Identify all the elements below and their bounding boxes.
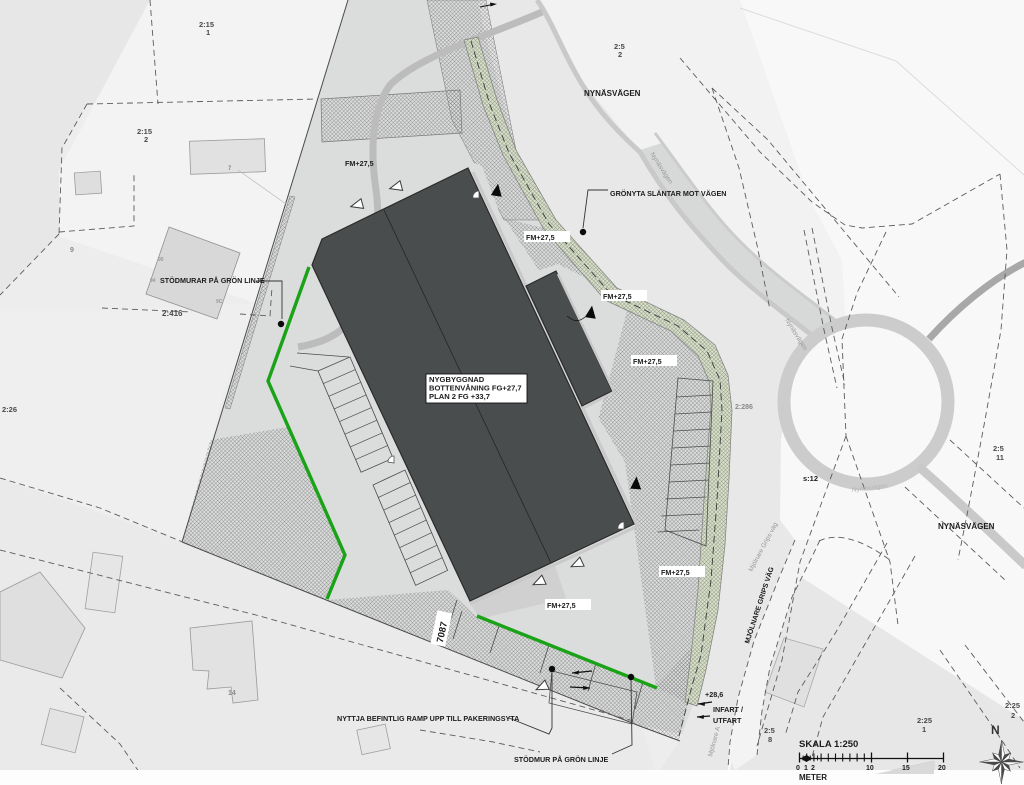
svg-text:2: 2	[144, 135, 148, 144]
svg-text:15: 15	[902, 765, 910, 772]
svg-text:UTFART: UTFART	[713, 716, 742, 725]
svg-text:9C: 9C	[216, 299, 223, 305]
svg-text:2:25: 2:25	[917, 716, 932, 725]
svg-text:14: 14	[228, 690, 236, 697]
svg-text:90: 90	[158, 257, 164, 263]
svg-text:2: 2	[811, 765, 815, 772]
svg-text:2:286: 2:286	[735, 404, 753, 411]
svg-text:2:26: 2:26	[2, 405, 17, 414]
svg-text:NYNÄSVÄGEN: NYNÄSVÄGEN	[584, 89, 641, 98]
svg-text:11: 11	[996, 453, 1004, 462]
svg-text:2:5: 2:5	[993, 444, 1004, 453]
svg-text:FM+27,5: FM+27,5	[547, 601, 576, 610]
svg-text:0: 0	[796, 765, 800, 772]
svg-text:FM+27,5: FM+27,5	[526, 233, 555, 242]
svg-text:1: 1	[922, 725, 926, 734]
svg-text:10: 10	[866, 765, 874, 772]
svg-text:FM+27,5: FM+27,5	[633, 357, 662, 366]
svg-text:2:416: 2:416	[162, 309, 183, 318]
svg-text:INFART /: INFART /	[713, 705, 743, 714]
svg-text:STÖDMUR PÅ GRÖN LINJE: STÖDMUR PÅ GRÖN LINJE	[514, 755, 608, 764]
svg-text:1: 1	[206, 28, 210, 37]
svg-text:+28,6: +28,6	[705, 690, 723, 699]
svg-text:STÖDMURAR PÅ GRÖN LINJE: STÖDMURAR PÅ GRÖN LINJE	[160, 276, 265, 285]
svg-text:NYNÄSVÄGEN: NYNÄSVÄGEN	[938, 522, 995, 531]
svg-text:PLAN 2 FG +33,7: PLAN 2 FG +33,7	[429, 392, 490, 401]
svg-text:1: 1	[804, 765, 808, 772]
svg-text:20: 20	[938, 765, 946, 772]
svg-text:9: 9	[70, 247, 74, 254]
svg-text:METER: METER	[799, 773, 827, 782]
svg-text:8: 8	[768, 735, 772, 744]
svg-text:2: 2	[1011, 711, 1015, 720]
svg-text:FM+27,5: FM+27,5	[661, 568, 690, 577]
svg-text:NYTTJA BEFINTLIG RAMP UPP TILL: NYTTJA BEFINTLIG RAMP UPP TILL PAKERINGS…	[337, 714, 519, 723]
svg-text:SKALA 1:250: SKALA 1:250	[799, 739, 858, 750]
svg-text:GRÖNYTA SLÄNTAR MOT VÄGEN: GRÖNYTA SLÄNTAR MOT VÄGEN	[610, 189, 726, 198]
svg-text:2: 2	[618, 50, 622, 59]
svg-text:FM+27,5: FM+27,5	[603, 292, 632, 301]
svg-text:94: 94	[150, 278, 156, 284]
svg-text:s:12: s:12	[803, 474, 818, 483]
svg-text:N: N	[991, 723, 1000, 737]
svg-text:FM+27,5: FM+27,5	[345, 159, 374, 168]
svg-text:2:25: 2:25	[1005, 701, 1020, 710]
svg-text:2:5: 2:5	[764, 726, 775, 735]
